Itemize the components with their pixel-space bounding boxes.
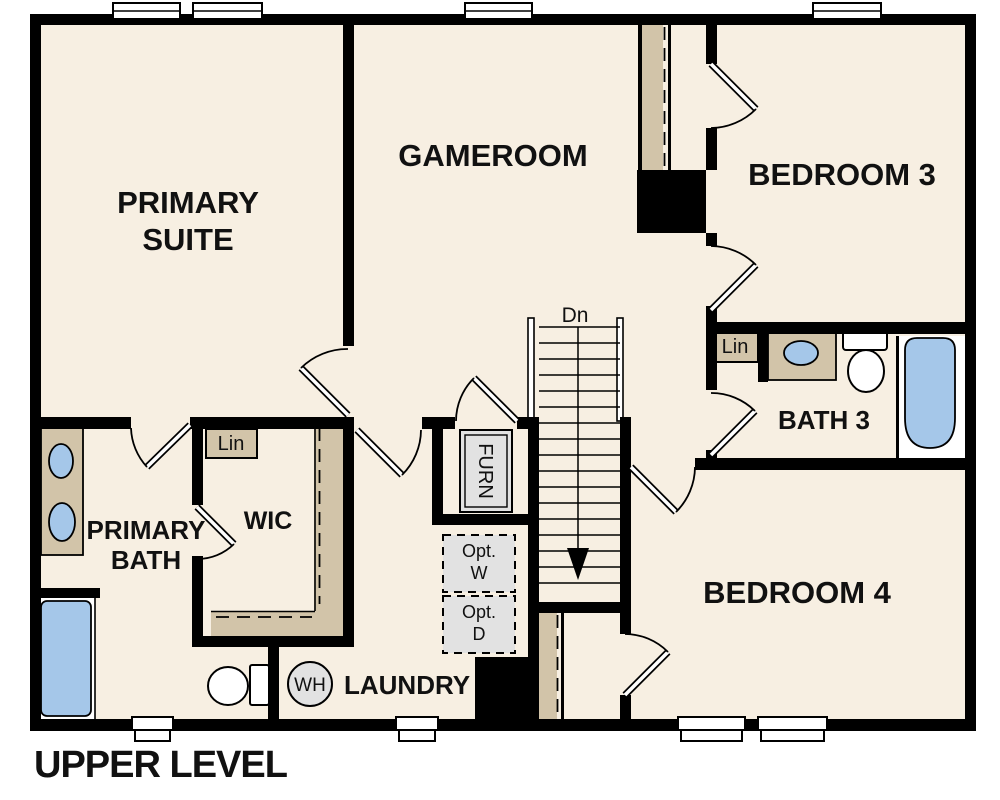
wall-bath3-linen-stub: [758, 330, 768, 382]
toilet-bowl: [848, 350, 884, 392]
wall-wic-bottom: [192, 636, 354, 647]
stair-rail-left: [528, 318, 534, 421]
opt-dryer-label-2: D: [473, 624, 486, 644]
linen-wic-label: Lin: [218, 433, 245, 455]
primary-suite-label-2: SUITE: [142, 222, 233, 257]
window-bottom: [396, 717, 438, 741]
tub-surround-edge: [896, 336, 899, 458]
wall-suite-gameroom: [343, 25, 354, 346]
gameroom-label: GAMEROOM: [398, 138, 587, 173]
closet-shelf-right: [314, 424, 343, 638]
window-bottom: [132, 717, 173, 741]
bedroom3-label: BEDROOM 3: [748, 157, 936, 192]
wall-bedroom3-closet-2: [706, 128, 717, 170]
wall-toilet-laundry: [268, 647, 279, 719]
wall-furnace-bottom: [432, 514, 539, 525]
wall-furnace-left: [432, 417, 443, 525]
shower: [41, 601, 91, 716]
window-top: [193, 3, 262, 19]
wall-wic-right: [343, 417, 354, 647]
wall-suite-bath-right: [190, 417, 354, 429]
wall-bedroom3-bottom: [706, 322, 976, 334]
wall-suite-bath-left: [41, 417, 131, 429]
primary-bath-label-2: BATH: [111, 545, 181, 575]
window-bottom: [758, 717, 827, 741]
wall-bedroom4-left-lower: [620, 695, 631, 719]
plan-title: UPPER LEVEL: [34, 744, 288, 786]
wall-wic-left-lower: [192, 556, 203, 647]
opt-washer-label-2: W: [471, 563, 488, 583]
window-top: [813, 3, 881, 19]
wall-bedroom3-closet-3: [706, 233, 717, 246]
window-top: [465, 3, 532, 19]
stairs-down-label: Dn: [562, 304, 589, 327]
wall-stairs-left: [528, 421, 539, 613]
primary-bath-label-1: PRIMARY: [87, 515, 206, 545]
opt-washer-label-1: Opt.: [462, 541, 496, 561]
window-bottom: [678, 717, 745, 741]
wall-chimney: [637, 170, 706, 233]
sink: [49, 444, 73, 478]
water-heater-label: WH: [294, 675, 326, 696]
laundry-label: LAUNDRY: [344, 670, 470, 700]
sink: [784, 341, 818, 365]
primary-suite-label-1: PRIMARY: [117, 185, 259, 220]
linen-bath3-label: Lin: [722, 336, 749, 358]
toilet-bowl: [208, 667, 248, 705]
bedroom4-label: BEDROOM 4: [703, 575, 892, 610]
closet-shelf: [539, 613, 557, 719]
closet-divider-line: [638, 25, 642, 170]
wall-bedroom3-closet-1: [706, 25, 717, 64]
wall-bath3-left: [706, 334, 717, 390]
bath3-label: BATH 3: [778, 405, 870, 435]
stair-rail-right: [617, 318, 623, 421]
wall-exterior-right: [965, 14, 976, 731]
floor-plan: PRIMARY SUITE GAMEROOM BEDROOM 3 BEDROOM…: [0, 0, 1000, 800]
closet-shelf-edge: [561, 613, 564, 719]
wall-stairs-right: [620, 417, 631, 613]
wic-label: WIC: [244, 507, 293, 535]
closet-shelf: [642, 25, 663, 170]
furnace-label: FURN: [474, 443, 496, 499]
wall-shower-stub: [41, 588, 100, 598]
closet-shelf-edge: [668, 25, 671, 170]
tub: [905, 338, 955, 448]
sink: [49, 503, 75, 541]
closet-shelf-bottom: [211, 611, 343, 638]
wall-laundry-block: [475, 657, 539, 719]
wall-wic-left-upper: [192, 429, 203, 505]
toilet-tank: [250, 665, 269, 705]
wall-stairs-bottom: [528, 602, 631, 613]
wall-exterior-left: [30, 14, 41, 731]
opt-dryer-label-1: Opt.: [462, 602, 496, 622]
wall-bedroom4-top: [695, 458, 976, 470]
window-top: [113, 3, 180, 19]
wall-bedroom4-left-upper: [620, 613, 631, 634]
